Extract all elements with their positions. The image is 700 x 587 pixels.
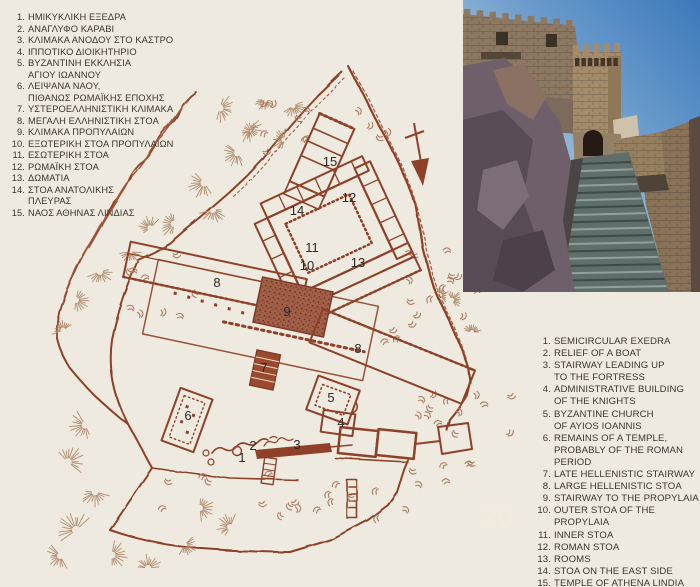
legend-text: SEMICIRCULAR EXEDRA	[554, 336, 671, 348]
legend-text: ΛΕΙΨΑΝΑ ΝΑΟΥ, ΠΙΘΑΝΩΣ ΡΩΜΑΪΚΗΣ ΕΠΟΧΗΣ	[28, 81, 165, 104]
map-label-1: 1	[238, 450, 245, 465]
map-label-6: 6	[184, 408, 191, 423]
legend-text: ΕΣΩΤΕΡΙΚΗ ΣΤΟΑ	[28, 150, 109, 162]
map-label-12: 12	[342, 190, 356, 205]
legend-item: 10.ΕΞΩΤΕΡΙΚΗ ΣΤΟΑ ΠΡΟΠΥΛΑΙΩΝ	[9, 139, 234, 151]
legend-item: 1.ΗΜΙΚΥΚΛΙΚΗ ΕΞΕΔΡΑ	[9, 12, 234, 24]
map-label-9: 9	[283, 304, 290, 319]
legend-text: INNER STOA	[554, 530, 613, 542]
legend-text: ΜΕΓΑΛΗ ΕΛΛΗΝΙΣΤΙΚΗ ΣΤΟΑ	[28, 116, 159, 128]
legend-number: 13.	[534, 554, 551, 566]
legend-text: RELIEF OF A BOAT	[554, 348, 641, 360]
legend-item: 1.SEMICIRCULAR EXEDRA	[534, 336, 700, 348]
legend-number: 6.	[9, 81, 25, 93]
map-label-3: 3	[293, 437, 300, 452]
legend-number: 5.	[9, 58, 25, 70]
map-label-2: 2	[249, 438, 256, 453]
legend-text: ADMINISTRATIVE BUILDING OF THE KNIGHTS	[554, 384, 684, 408]
legend-text: ΥΣΤΕΡΟΕΛΛΗΝΙΣΤΙΚΗ ΚΛΙΜΑΚΑ	[28, 104, 173, 116]
legend-text: OUTER STOA OF THE PROPYLAIA	[554, 505, 700, 529]
legend-number: 14.	[534, 566, 551, 578]
legend-item: 4.ADMINISTRATIVE BUILDING OF THE KNIGHTS	[534, 384, 700, 408]
legend-text: ΕΞΩΤΕΡΙΚΗ ΣΤΟΑ ΠΡΟΠΥΛΑΙΩΝ	[28, 139, 173, 151]
legend-item: 13.ΔΩΜΑΤΙΑ	[9, 173, 234, 185]
legend-item: 9.ΚΛΙΜΑΚΑ ΠΡΟΠΥΛΑΙΩΝ	[9, 127, 234, 139]
legend-item: 10.OUTER STOA OF THE PROPYLAIA	[534, 505, 700, 529]
inner-west-wall	[111, 262, 138, 424]
legend-text: STOA ON THE EAST SIDE	[554, 566, 673, 578]
legend-text: ΒΥΖΑΝΤΙΝΗ ΕΚΚΛΗΣΙΑ ΑΓΙΟΥ ΙΩΑΝΝΟΥ	[28, 58, 131, 81]
legend-number: 4.	[9, 47, 25, 59]
west-wall	[57, 338, 128, 424]
legend-text: STAIRWAY TO THE PROPYLAIA	[554, 493, 699, 505]
map-label-11: 11	[305, 240, 319, 255]
english-legend: 1.SEMICIRCULAR EXEDRA2.RELIEF OF A BOAT3…	[534, 336, 700, 587]
legend-number: 4.	[534, 384, 551, 396]
map-label-7: 7	[260, 360, 267, 375]
east-edge-rocks	[354, 72, 466, 358]
legend-text: ΚΛΙΜΑΚΑ ΠΡΟΠΥΛΑΙΩΝ	[28, 127, 134, 139]
map-label-8: 8	[213, 275, 220, 290]
map-label-14: 14	[290, 203, 304, 218]
legend-item: 9.STAIRWAY TO THE PROPYLAIA	[534, 493, 700, 505]
legend-number: 5.	[534, 409, 551, 421]
fortress-photo-art	[463, 0, 700, 292]
legend-number: 11.	[534, 530, 551, 542]
grand-stair-9	[223, 271, 375, 352]
legend-number: 8.	[9, 116, 25, 128]
lower-terrace-wall	[152, 458, 408, 518]
legend-number: 8.	[534, 481, 551, 493]
legend-text: REMAINS OF A TEMPLE, PROBABLY OF THE ROM…	[554, 433, 700, 469]
south-edge	[110, 460, 408, 552]
legend-number: 9.	[534, 493, 551, 505]
legend-number: 7.	[9, 104, 25, 116]
legend-item: 15.TEMPLE OF ATHENA LINDIA	[534, 578, 700, 587]
legend-item: 12.ΡΩΜΑΪΚΗ ΣΤΟΑ	[9, 162, 234, 174]
legend-number: 15.	[534, 578, 551, 587]
legend-text: TEMPLE OF ATHENA LINDIA	[554, 578, 684, 587]
southwest-wall	[110, 424, 152, 530]
legend-text: LARGE HELLENISTIC STOA	[554, 481, 682, 493]
legend-number: 7.	[534, 469, 551, 481]
legend-text: ΔΩΜΑΤΙΑ	[28, 173, 70, 185]
legend-item: 14.ΣΤΟΑ ΑΝΑΤΟΛΙΚΗΣ ΠΛΕΥΡΑΣ	[9, 185, 234, 208]
legend-text: BYZANTINE CHURCH OF AYIOS IOANNIS	[554, 409, 654, 433]
north-arrow-icon	[405, 123, 429, 186]
legend-item: 3.ΚΛΙΜΑΚΑ ΑΝΟΔΟΥ ΣΤΟ ΚΑΣΤΡΟ	[9, 35, 234, 47]
legend-text: ROOMS	[554, 554, 591, 566]
legend-number: 6.	[534, 433, 551, 445]
legend-text: ΗΜΙΚΥΚΛΙΚΗ ΕΞΕΔΡΑ	[28, 12, 126, 24]
legend-item: 5.ΒΥΖΑΝΤΙΝΗ ΕΚΚΛΗΣΙΑ ΑΓΙΟΥ ΙΩΑΝΝΟΥ	[9, 58, 234, 81]
legend-item: 15.ΝΑΟΣ ΑΘΗΝΑΣ ΛΙΝΔΙΑΣ	[9, 208, 234, 220]
legend-item: 2.ΑΝΑΓΛΥΦΟ ΚΑΡΑΒΙ	[9, 24, 234, 36]
legend-number: 3.	[534, 360, 551, 372]
legend-number: 3.	[9, 35, 25, 47]
legend-text: LATE HELLENISTIC STAIRWAY	[554, 469, 695, 481]
map-label-13: 13	[351, 255, 365, 270]
page: 1512141110138987564321 20	[0, 0, 700, 587]
legend-number: 12.	[9, 162, 25, 174]
legend-number: 12.	[534, 542, 551, 554]
legend-text: ΚΛΙΜΑΚΑ ΑΝΟΔΟΥ ΣΤΟ ΚΑΣΤΡΟ	[28, 35, 173, 47]
legend-number: 13.	[9, 173, 25, 185]
map-label-15: 15	[323, 154, 337, 169]
legend-item: 8.LARGE HELLENISTIC STOA	[534, 481, 700, 493]
map-label-8: 8	[354, 341, 361, 356]
legend-number: 10.	[9, 139, 25, 151]
legend-item: 12.ROMAN STOA	[534, 542, 700, 554]
legend-number: 2.	[534, 348, 551, 360]
legend-item: 5.BYZANTINE CHURCH OF AYIOS IOANNIS	[534, 409, 700, 433]
boat-relief-2	[264, 437, 293, 447]
legend-number: 1.	[534, 336, 551, 348]
legend-number: 1.	[9, 12, 25, 24]
legend-number: 10.	[534, 505, 551, 517]
legend-item: 11.INNER STOA	[534, 530, 700, 542]
legend-number: 14.	[9, 185, 25, 197]
east-edge	[349, 67, 470, 430]
legend-item: 2.RELIEF OF A BOAT	[534, 348, 700, 360]
greek-legend: 1.ΗΜΙΚΥΚΛΙΚΗ ΕΞΕΔΡΑ2.ΑΝΑΓΛΥΦΟ ΚΑΡΑΒΙ3.ΚΛ…	[9, 12, 234, 219]
legend-text: ΙΠΠΟΤΙΚΟ ΔΙΟΙΚΗΤΗΡΙΟ	[28, 47, 137, 59]
legend-number: 2.	[9, 24, 25, 36]
legend-text: ΑΝΑΓΛΥΦΟ ΚΑΡΑΒΙ	[28, 24, 114, 36]
legend-item: 11.ΕΣΩΤΕΡΙΚΗ ΣΤΟΑ	[9, 150, 234, 162]
photo-arch-door	[583, 130, 603, 156]
legend-item: 3.STAIRWAY LEADING UP TO THE FORTRESS	[534, 360, 700, 384]
legend-number: 15.	[9, 208, 25, 220]
knights-buildings	[338, 423, 472, 461]
legend-item: 4.ΙΠΠΟΤΙΚΟ ΔΙΟΙΚΗΤΗΡΙΟ	[9, 47, 234, 59]
legend-text: ROMAN STOA	[554, 542, 619, 554]
legend-text: ΝΑΟΣ ΑΘΗΝΑΣ ΛΙΝΔΙΑΣ	[28, 208, 135, 220]
legend-number: 9.	[9, 127, 25, 139]
legend-item: 7.ΥΣΤΕΡΟΕΛΛΗΝΙΣΤΙΚΗ ΚΛΙΜΑΚΑ	[9, 104, 234, 116]
map-label-4: 4	[337, 415, 344, 430]
legend-item: 7.LATE HELLENISTIC STAIRWAY	[534, 469, 700, 481]
legend-item: 14.STOA ON THE EAST SIDE	[534, 566, 700, 578]
legend-item: 6.ΛΕΙΨΑΝΑ ΝΑΟΥ, ΠΙΘΑΝΩΣ ΡΩΜΑΪΚΗΣ ΕΠΟΧΗΣ	[9, 81, 234, 104]
fortress-photo	[463, 0, 700, 292]
legend-item: 6.REMAINS OF A TEMPLE, PROBABLY OF THE R…	[534, 433, 700, 469]
map-label-10: 10	[300, 258, 314, 273]
map-label-5: 5	[327, 390, 334, 405]
legend-text: ΣΤΟΑ ΑΝΑΤΟΛΙΚΗΣ ΠΛΕΥΡΑΣ	[28, 185, 114, 208]
legend-item: 8.ΜΕΓΑΛΗ ΕΛΛΗΝΙΣΤΙΚΗ ΣΤΟΑ	[9, 116, 234, 128]
page-watermark: 20	[481, 501, 514, 534]
legend-number: 11.	[9, 150, 25, 162]
legend-text: ΡΩΜΑΪΚΗ ΣΤΟΑ	[28, 162, 99, 174]
legend-text: STAIRWAY LEADING UP TO THE FORTRESS	[554, 360, 665, 384]
legend-item: 13.ROOMS	[534, 554, 700, 566]
